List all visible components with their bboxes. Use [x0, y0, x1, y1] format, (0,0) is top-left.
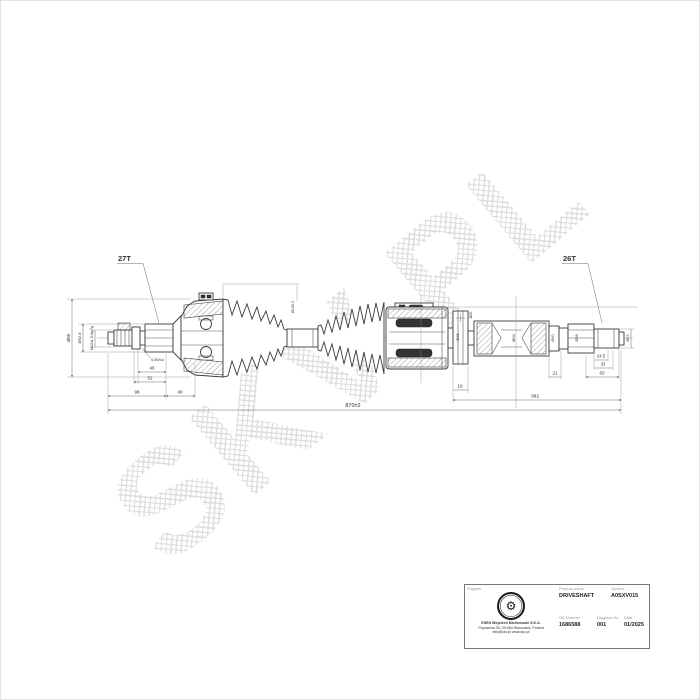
dim-dia-88: Ø88	[66, 333, 71, 342]
oe-number-cell: OE Number 1686588	[557, 614, 595, 648]
dim-60: 60	[599, 371, 605, 376]
date-value: 01/2025	[624, 622, 648, 629]
dim-dia-52-8: Ø52.8	[77, 332, 82, 344]
diagram-no-value: 001	[597, 622, 620, 629]
dim-dia-45: Ø45	[455, 332, 460, 340]
damper-bearing-cylinder	[468, 321, 549, 356]
dim-overall-length: 870±2	[345, 403, 360, 409]
gear-icon: ⚙	[506, 599, 517, 613]
dim-dia-28: Ø28	[575, 334, 579, 341]
dim-thread-spec: M22x1.5-6g/7g	[90, 326, 94, 350]
dimension-98: 98	[108, 390, 166, 397]
dim-19: 19	[457, 384, 463, 389]
dimension-dia-100-2: Ø100.2	[291, 301, 295, 313]
symbol-cell: Symbol A0SXV015	[609, 585, 650, 614]
right-cv-boot	[318, 302, 384, 374]
diagram-no-label: Diagram No	[597, 615, 620, 620]
dimension-19: 19	[453, 366, 468, 403]
dimension-dia-88: Ø88	[66, 299, 72, 377]
right-teeth-label: 26T	[563, 254, 576, 263]
product-name-value: DRIVESHAFT	[559, 593, 607, 600]
date-label: Date	[624, 615, 648, 620]
oe-number-label: OE Number	[559, 615, 593, 620]
dimension-48: 48	[138, 349, 166, 399]
dim-dia-24: Ø24	[626, 334, 630, 341]
diagram-no-cell: Diagram No 001	[595, 614, 622, 648]
product-name-cell: Product name DRIVESHAFT	[557, 585, 609, 614]
bearing-retainer-clip	[199, 293, 213, 300]
dimension-382: 382	[453, 394, 621, 401]
title-block-company-cell: Supplier ⚙ ESEN Wojciech Michnowski S.K.…	[465, 585, 557, 648]
dim-dia-40: Ø40	[551, 334, 555, 341]
dim-24-5: 24.5	[597, 354, 606, 359]
company-contact: info@skv.pl www.skv.pl	[467, 630, 555, 635]
dim-dia-100-2: Ø100.2	[291, 301, 295, 313]
symbol-label: Symbol	[611, 586, 648, 591]
intermediate-shaft	[287, 329, 318, 347]
date-cell: Date 01/2025	[622, 614, 650, 648]
dim-groove: 5.3Wx2	[151, 358, 164, 362]
dimension-dia-24: Ø24	[626, 329, 631, 348]
dim-48: 48	[149, 366, 155, 371]
dim-dia-64: Ø64	[511, 333, 516, 341]
symbol-value: A0SXV015	[611, 593, 648, 600]
company-logo: ⚙	[497, 592, 525, 620]
dim-382: 382	[531, 394, 539, 400]
product-name-label: Product name	[559, 586, 607, 591]
tripod-roller-bottom	[396, 349, 432, 357]
inner-tripod-joint-housing	[386, 307, 448, 369]
title-block: Supplier ⚙ ESEN Wojciech Michnowski S.K.…	[464, 584, 650, 649]
dim-dia-25: Ø25	[469, 312, 473, 319]
left-cv-boot	[223, 299, 287, 377]
dimension-dia-52-8: Ø52.8	[77, 324, 83, 352]
dimension-21: 21	[549, 351, 561, 379]
drawing-sheet: SKV.PL	[0, 0, 700, 700]
dim-98: 98	[134, 390, 140, 395]
left-teeth-label: 27T	[118, 254, 131, 263]
left-spline-callout: 27T	[117, 254, 159, 323]
dim-49: 49	[177, 390, 183, 395]
supplier-label: Supplier	[467, 586, 555, 591]
oe-number-value: 1686588	[559, 622, 593, 629]
dim-52: 52	[147, 376, 153, 381]
dimension-24-5: 24.5	[594, 350, 608, 370]
dim-21: 21	[552, 371, 558, 376]
tripod-roller-top	[396, 319, 432, 327]
left-cv-joint-housing	[181, 293, 223, 377]
right-stub-shaft	[549, 324, 624, 353]
right-spline-callout: 26T	[562, 254, 602, 323]
dim-33: 33	[601, 362, 606, 367]
dimension-thread-spec: M22x1.5-6g/7g	[90, 326, 95, 350]
left-stub-shaft	[108, 316, 181, 360]
